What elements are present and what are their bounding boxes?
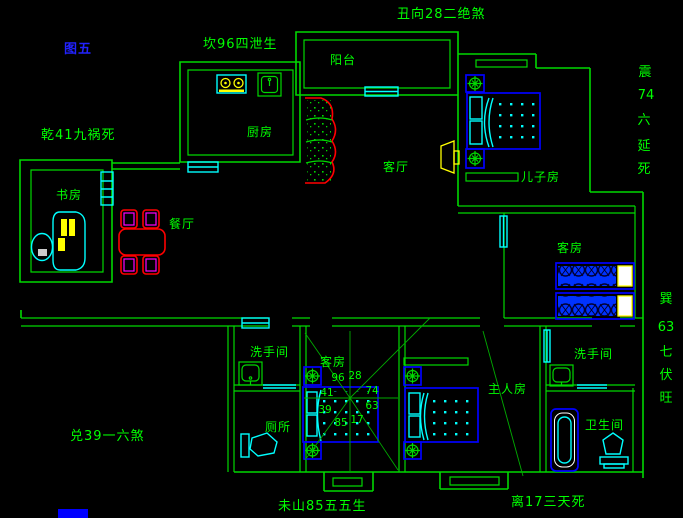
vertical-char: 旺 (659, 391, 672, 406)
compass-number: 85 (334, 417, 347, 429)
dining-table (119, 229, 165, 255)
annotation-right-upper: 震 74 六 延 死 (637, 65, 654, 177)
room-label-washroom-left: 洗手间 (250, 345, 289, 359)
desk-chair (32, 234, 53, 261)
window-guestroom (500, 216, 507, 247)
cad-floorplan-screen: 96 28 41 74 39 63 85 17 (0, 0, 683, 518)
vertical-char: 震 (638, 65, 651, 80)
bed (556, 293, 634, 319)
shelf (476, 60, 527, 67)
figure-label: 图五 (64, 42, 92, 57)
annotation-left-lower: 兑39一六煞 (70, 429, 145, 444)
bathtub-icon (551, 409, 578, 471)
room-label-dining: 餐厅 (169, 216, 195, 231)
dining-chairs (121, 210, 159, 274)
toilet-icon (241, 433, 277, 457)
toilet-icon (600, 433, 628, 468)
room-label-guest-mid: 客房 (320, 354, 346, 369)
room-label-washroom-right: 洗手间 (574, 347, 613, 361)
sons-room-furniture (466, 60, 540, 181)
annotation-bottom-right: 离17三天死 (511, 494, 586, 510)
twin-beds (556, 263, 634, 319)
compass-number: 96 (331, 372, 345, 384)
bed (556, 263, 634, 289)
desk (53, 212, 85, 270)
nightstand (466, 149, 484, 168)
room-label-master: 主人房 (488, 381, 527, 396)
annotation-top-center: 丑向28二绝煞 (397, 6, 486, 22)
room-label-sons-room: 儿子房 (521, 169, 560, 184)
vertical-char: 死 (637, 162, 650, 177)
room-label-toilet: 厕所 (265, 420, 291, 434)
compass-number: 63 (365, 400, 378, 412)
vertical-char: 伏 (659, 368, 672, 383)
washroom-sink-icon (550, 365, 573, 386)
vertical-char: 74 (638, 88, 655, 103)
compass-number: 17 (350, 414, 363, 426)
room-label-kitchen: 厨房 (247, 124, 273, 139)
room-label-guest-right: 客房 (557, 240, 583, 255)
compass-number: 28 (348, 370, 361, 382)
shelf (466, 173, 518, 181)
door-threshold-toilet (263, 385, 296, 388)
vertical-char: 七 (659, 345, 672, 360)
annotation-top-left: 坎96四泄生 (203, 37, 278, 52)
computer-icon (61, 219, 67, 236)
stove-icon (217, 75, 246, 93)
compass-number: 41 (320, 387, 333, 399)
master-furniture (404, 358, 478, 459)
tv-icon (441, 141, 459, 173)
partial-ui-fragment (58, 509, 88, 518)
plant-box (305, 98, 336, 183)
bed (405, 388, 478, 442)
vertical-char: 63 (658, 320, 675, 335)
window-kitchen (188, 162, 218, 172)
kitchen-sink-icon (258, 73, 281, 96)
nightstand (404, 442, 421, 459)
room-label-study: 书房 (56, 187, 82, 202)
pillow (618, 296, 632, 316)
nightstand (466, 75, 484, 92)
vertical-char: 延 (637, 139, 650, 154)
window-washroom (544, 330, 550, 362)
annotation-left-upper: 乾41九祸死 (41, 128, 116, 143)
shelf (404, 358, 468, 365)
floor-plan-canvas: 96 28 41 74 39 63 85 17 (0, 0, 683, 518)
door-threshold-bathroom (577, 385, 607, 388)
washroom-sink-icon (239, 362, 262, 385)
annotation-right-lower: 巽 63 七 伏 旺 (658, 292, 675, 406)
vertical-char: 巽 (659, 292, 672, 307)
room-label-living: 客厅 (383, 159, 409, 174)
nightstand (404, 367, 421, 385)
annotation-bottom-center: 未山85五五生 (278, 499, 367, 514)
bed (467, 93, 540, 149)
room-label-balcony: 阳台 (330, 52, 356, 67)
vertical-char: 六 (637, 113, 650, 128)
compass-number: 74 (365, 385, 379, 397)
room-label-bathroom: 卫生间 (585, 418, 624, 432)
compass-number: 39 (318, 404, 331, 416)
pillow (618, 266, 632, 286)
